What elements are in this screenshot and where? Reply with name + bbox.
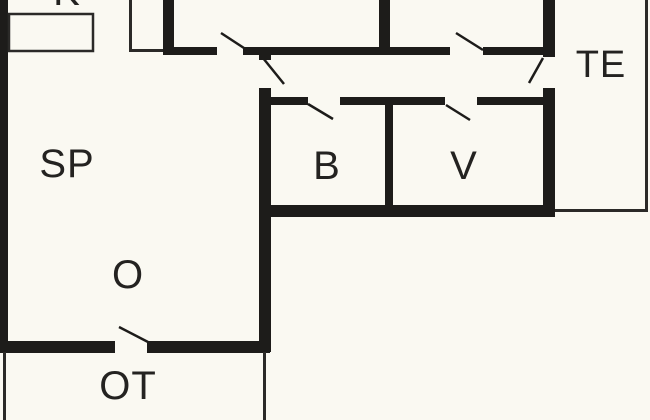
room-label-ot: OT (99, 364, 157, 408)
terrace-ot-right-line (263, 352, 266, 420)
terrace-te-right-line (645, 0, 648, 212)
kitchen-fixture-bottom-line (129, 49, 163, 52)
kitchen-fixture-left-line (129, 0, 132, 52)
room-label-sp: SP (39, 142, 94, 186)
wall-outer-bottom-left (0, 341, 115, 353)
wall-b-v-divider (385, 97, 393, 217)
wall-outer-right-bottom (543, 88, 555, 217)
wall-hall-north-a (163, 47, 217, 55)
room-label-k-cropped: K (53, 0, 81, 14)
wall-outer-left (0, 0, 8, 352)
terrace-ot-left-line (3, 352, 6, 420)
wall-hall-door-stub (259, 47, 271, 60)
wall-bv-bottom (259, 205, 555, 217)
wall-kitchen-divider (163, 0, 174, 55)
room-label-v: V (450, 144, 478, 188)
floor-plan-canvas: SP O B V TE OT K (0, 0, 650, 420)
wall-hall-south-a (259, 97, 308, 105)
wall-hall-south-c (477, 97, 543, 105)
wall-top-rooms-divider (379, 0, 390, 55)
wall-outer-bottom-right (147, 341, 270, 353)
room-label-te: TE (576, 44, 627, 86)
terrace-te-bottom-line (555, 209, 648, 212)
wall-outer-right-top (543, 0, 555, 57)
wall-hall-north-b (243, 47, 450, 55)
floor-plan: SP O B V TE OT K (0, 0, 650, 420)
wall-hall-north-c (483, 47, 543, 55)
room-label-o: O (112, 253, 144, 297)
room-label-b: B (313, 144, 341, 188)
wall-center-vertical (259, 88, 271, 352)
